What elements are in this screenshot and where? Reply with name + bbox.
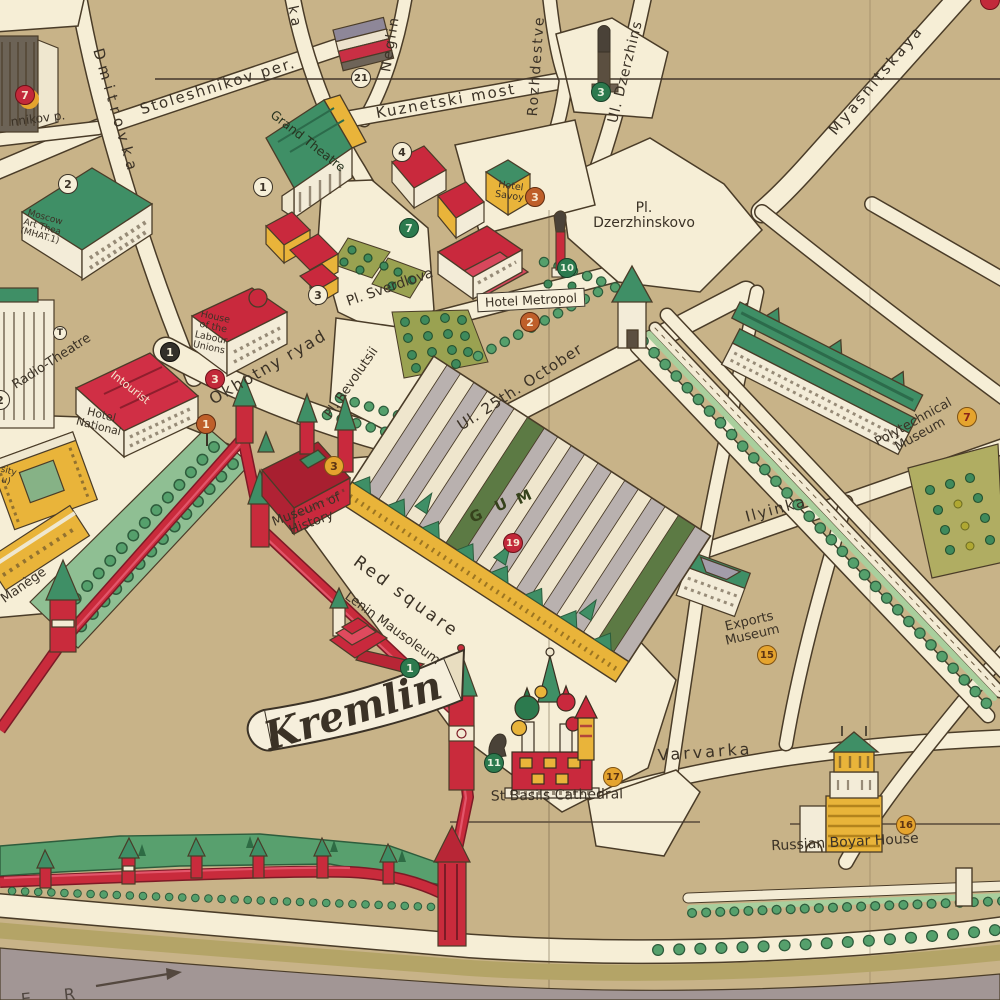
gum-roof-letter-m: M [514,487,534,508]
street-label-petrovka-partial: ka [284,4,304,31]
badge-okhotny-1: 1 [196,414,216,434]
place-label-st-basils: St Basils Cathedral [491,787,624,804]
badge-partial-top-right [980,0,1000,10]
place-label-hotel-national: Hotel National [75,404,125,438]
place-label-maniege: Manège [0,565,49,606]
street-label-rozhdestvenka: Rozhdestve [526,15,548,117]
badge-gum-19: 19 [503,533,523,553]
labels-layer: Stoleshnikov per. nnikov p. Dmitrovka ka… [0,0,1000,1000]
street-label-stoleshnikov-partial: nnikov p. [10,109,66,129]
roof-label-intourist: Intourist [108,369,151,407]
place-label-boyar-house: Russian Boyar House [771,832,919,855]
badge-savoy-3: 3 [525,187,545,207]
badge-roof-t: T [53,326,67,340]
place-label-hotel-savoy: Hotel Savoy [494,180,525,204]
badge-metropol-2: 2 [520,312,540,332]
street-label-dmitrovka: Dmitrovka [90,46,142,177]
badge-grand-theatre-1: 1 [253,177,273,197]
badge-houses-3: 3 [308,285,328,305]
place-label-labour-unions: House of the Labour Unions [192,310,233,357]
place-label-exports-museum: Exports Museum [721,609,781,649]
badge-minin-11: 11 [484,753,504,773]
street-label-kuznetski: Kuznetski most [375,81,518,122]
place-label-moscow-art: Moscow Art Thea (MHAT.1) [19,208,66,247]
street-label-25-october: Ul. 25th. October [454,341,585,434]
gum-roof-letter-g: G [467,506,485,526]
river-label: E R [20,984,90,1000]
pictorial-map-moscow: Stoleshnikov per. nnikov p. Dmitrovka ka… [0,0,1000,1000]
square-label-sverdlova: Pl. Sverdlova [345,266,436,310]
banner-label-kremlin: Kremlin [259,664,447,759]
badge-moscow-art-2: 2 [58,174,78,194]
street-label-myasnitskaya: Myasnitskaya [825,22,926,138]
badge-national-1: 1 [160,342,180,362]
badge-gardens-7: 7 [399,218,419,238]
place-label-radio-theatre: Radio-Theatre [10,331,94,392]
badge-history-3: 3 [324,456,344,476]
place-label-grand-theatre: Grand Theatre [268,108,348,174]
square-label-dzerzhinskovo-line1: Pl. [593,201,695,216]
badge-boyar-16: 16 [896,815,916,835]
street-label-neglinnaya: Neglin [379,15,403,73]
badge-lubyanka-3: 3 [591,82,611,102]
place-label-university-partial: sity u) [0,466,17,489]
square-label-revolutsii: Pl. Revolutsii [323,345,382,421]
square-label-dzerzhinskovo-line2: Dzerzhinskovo [593,216,695,231]
savoy-line2: Savoy [494,190,524,204]
badge-kuznetski-4: 4 [392,142,412,162]
street-label-stoleshnikov: Stoleshnikov per. [138,55,298,118]
badge-exports-15: 15 [757,645,777,665]
gum-roof-letter-u: U [492,495,510,515]
badge-dmitrovka-7: 7 [15,85,35,105]
badge-polytechnical-7: 7 [957,407,977,427]
badge-tsum-21: 21 [351,68,371,88]
badge-basils-17: 17 [603,767,623,787]
badge-metropol-10: 10 [557,258,577,278]
badge-radio-2: 2 [0,390,10,410]
street-label-varvarka: Varvarka [657,740,753,764]
place-label-polytechnical: Polytechnical Museum [873,396,962,462]
street-label-ilyinka: Ilyinka [744,493,809,525]
street-label-dzerzhinskogo: Ul. Dzerzhins [606,19,646,124]
badge-unions-3: 3 [205,369,225,389]
plaque-hotel-metropol: Hotel Metropol [477,288,586,313]
place-label-museum-history: Museum of History [270,491,347,543]
square-label-red-square: Red square [350,553,462,642]
badge-mausoleum-1: 1 [400,658,420,678]
square-label-dzerzhinskovo: Pl. Dzerzhinskovo [593,201,695,231]
